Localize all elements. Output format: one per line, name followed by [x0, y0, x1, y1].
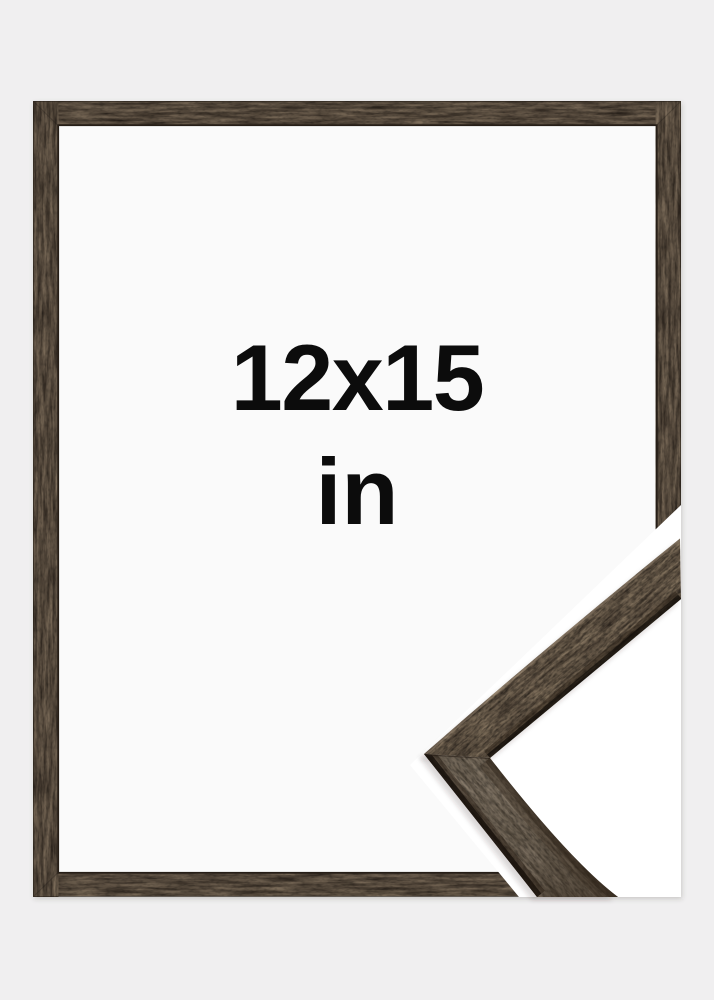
svg-text:12x15: 12x15 — [231, 325, 484, 430]
svg-text:in: in — [315, 439, 398, 544]
